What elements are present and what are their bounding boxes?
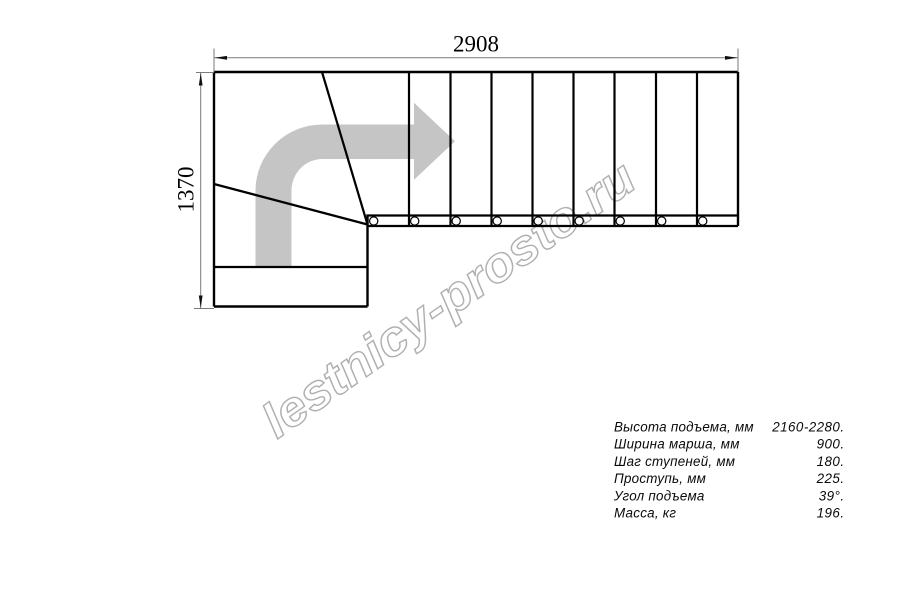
svg-text:2908: 2908 bbox=[453, 32, 499, 57]
svg-text:lestnicy-prosto.ru: lestnicy-prosto.ru bbox=[252, 151, 645, 449]
svg-text:Проступь, мм: Проступь, мм bbox=[614, 471, 706, 486]
svg-text:225.: 225. bbox=[816, 471, 845, 486]
svg-text:Масса, кг: Масса, кг bbox=[614, 506, 676, 521]
svg-text:39°.: 39°. bbox=[819, 488, 845, 503]
svg-text:1370: 1370 bbox=[174, 167, 199, 213]
svg-text:Угол подъема: Угол подъема bbox=[613, 488, 705, 503]
svg-text:2160-2280.: 2160-2280. bbox=[771, 420, 844, 435]
svg-text:900.: 900. bbox=[817, 437, 845, 452]
svg-text:Ширина марша, мм: Ширина марша, мм bbox=[614, 437, 740, 452]
svg-text:180.: 180. bbox=[817, 454, 845, 469]
svg-text:Шаг ступеней, мм: Шаг ступеней, мм bbox=[614, 454, 735, 469]
svg-text:196.: 196. bbox=[817, 506, 845, 521]
svg-text:Высота подъема, мм: Высота подъема, мм bbox=[614, 420, 754, 435]
